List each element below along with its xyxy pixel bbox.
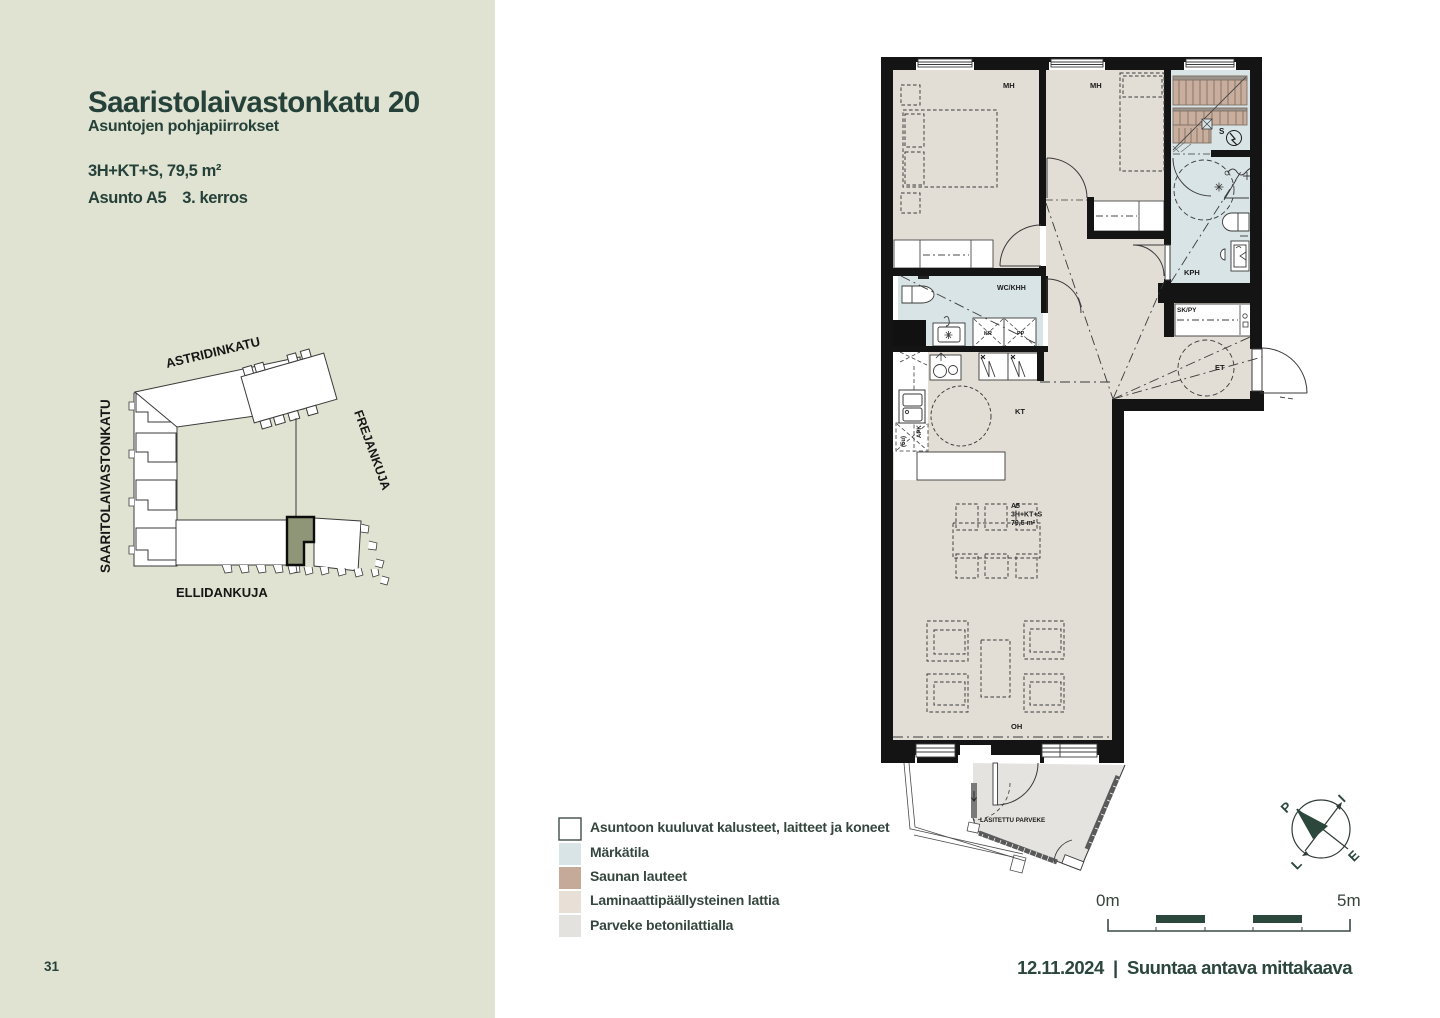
svg-text:79,5 m²: 79,5 m²: [1011, 520, 1036, 527]
svg-text:(5u): (5u): [901, 436, 907, 447]
svg-text:APK: APK: [917, 425, 923, 438]
svg-text:SAARITOLAIVASTONKATU: SAARITOLAIVASTONKATU: [98, 399, 113, 573]
svg-text:ET: ET: [1215, 363, 1225, 372]
svg-text:A5: A5: [1011, 503, 1020, 510]
svg-text:OH: OH: [1011, 722, 1022, 731]
svg-text:ASTRIDINKATU: ASTRIDINKATU: [164, 334, 261, 371]
svg-text:I: I: [1335, 792, 1348, 805]
svg-text:KPH: KPH: [1184, 268, 1200, 277]
svg-text:MH: MH: [1003, 81, 1015, 90]
svg-text:L: L: [1288, 856, 1304, 872]
svg-text:P: P: [1278, 799, 1295, 816]
svg-text:PP: PP: [1017, 331, 1025, 337]
svg-text:ELLIDANKUJA: ELLIDANKUJA: [176, 585, 268, 600]
svg-text:LASITETTU PARVEKE: LASITETTU PARVEKE: [980, 817, 1045, 824]
svg-text:KR: KR: [984, 331, 992, 337]
svg-text:S: S: [1219, 127, 1225, 136]
svg-text:FREJANKUJA: FREJANKUJA: [351, 408, 393, 492]
svg-text:SK/PY: SK/PY: [1177, 307, 1197, 314]
svg-text:WC/KHH: WC/KHH: [997, 285, 1026, 292]
svg-text:3H+KT+S: 3H+KT+S: [1011, 512, 1042, 519]
svg-text:E: E: [1345, 848, 1362, 865]
svg-text:KT: KT: [1015, 407, 1025, 416]
svg-text:MH: MH: [1090, 81, 1102, 90]
